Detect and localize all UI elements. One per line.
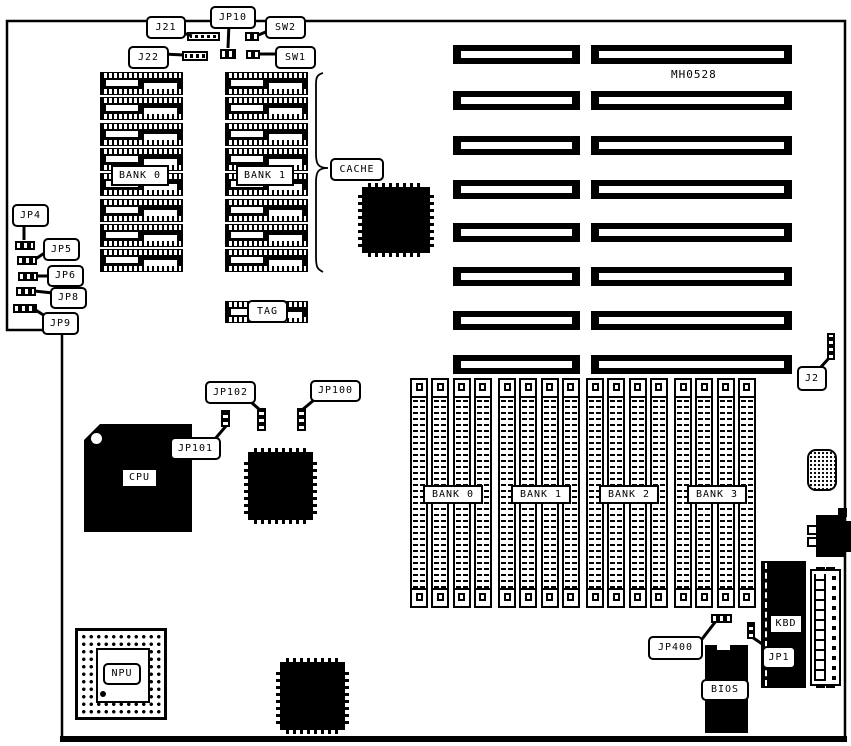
dip-body-window (106, 207, 138, 213)
memory-bank3-label: BANK 3 (687, 485, 747, 504)
simm-latch-hook (504, 383, 511, 391)
dip-body-window (144, 83, 177, 89)
board-bottom-edge (60, 736, 847, 742)
dip-body-window (144, 210, 177, 216)
dip-body-window (106, 257, 138, 263)
dip-body-window (106, 232, 138, 238)
simm-latch-hook (743, 383, 750, 391)
din-mount-tab-2 (807, 537, 818, 547)
din-connector-port (845, 521, 851, 552)
callout-jp4: JP4 (12, 204, 49, 227)
isa-slot-opening (599, 51, 784, 58)
isa-slot-segment (453, 180, 580, 199)
bios-label: BIOS (701, 679, 749, 701)
simm-latch-hook (525, 383, 532, 391)
simm-latch-top (500, 380, 514, 398)
isa-slot-segment (591, 311, 792, 330)
dip-body-window (231, 207, 263, 213)
simm-latch-hook (701, 383, 708, 391)
dip-pin-row-top (102, 225, 181, 230)
npu-label: NPU (103, 663, 141, 685)
cache-dip-chip (100, 97, 183, 120)
isa-slot-segment (591, 267, 792, 286)
io-controller-chip (280, 662, 345, 730)
jp5-jumper (17, 256, 37, 265)
simm-latch-hook (567, 593, 574, 601)
cache-dip-chip (100, 72, 183, 95)
din-connector-tab (838, 508, 847, 517)
simm-latch-hook (504, 593, 511, 601)
qfp-pins (313, 458, 317, 514)
cache-dip-chip (225, 199, 308, 222)
qfp-pins (276, 668, 280, 724)
qfp-pins (368, 253, 424, 257)
simm-latch-bottom (412, 588, 426, 606)
dip-pin-row-top (102, 149, 181, 154)
dip-pin-row-top (227, 73, 306, 78)
cache-dip-chip (225, 72, 308, 95)
simm-latch-bottom (476, 588, 490, 606)
callout-jp100: JP100 (310, 380, 361, 402)
j21-header (187, 32, 220, 41)
callout-jp5: JP5 (43, 238, 80, 261)
dip-pin-row-bottom (227, 266, 306, 271)
simm-latch-hook (701, 593, 708, 601)
simm-latch-hook (722, 593, 729, 601)
isa-slot-opening (461, 273, 572, 280)
simm-latch-hook (416, 593, 423, 601)
isa-slot-segment (591, 45, 792, 64)
dip-body-window (269, 159, 302, 165)
qfp-pins (286, 730, 339, 734)
dip-body-window (106, 131, 138, 137)
simm-latch-bottom (652, 588, 666, 606)
jp10-jumper (220, 49, 236, 59)
simm-latch-hook (680, 593, 687, 601)
jp1-jumper (747, 622, 755, 639)
memory-bank2-label: BANK 2 (599, 485, 659, 504)
isa-slot-segment (453, 267, 580, 286)
simm-latch-hook (416, 383, 423, 391)
simm-latch-hook (458, 593, 465, 601)
qfp-pins (430, 193, 434, 247)
dip-pin-row-top (102, 73, 181, 78)
callout-j2: J2 (797, 366, 827, 391)
isa-slot-segment (591, 223, 792, 242)
jp101-jumper (221, 410, 230, 427)
isa-slot-opening (599, 142, 784, 149)
callout-jp6: JP6 (47, 265, 84, 287)
qfp-pins (254, 520, 307, 524)
isa-slot-opening (599, 229, 784, 236)
qfp-pins (254, 448, 307, 452)
dip-body-window (144, 134, 177, 140)
isa-slot-opening (599, 317, 784, 324)
simm-latch-top (609, 380, 623, 398)
isa-slot-opening (461, 361, 572, 368)
simm-latch-bottom (676, 588, 690, 606)
simm-latch-top (543, 380, 557, 398)
isa-slot-segment (453, 355, 580, 374)
simm-latch-top (476, 380, 490, 398)
power-connector-contacts (832, 575, 836, 680)
dip-pin-row-bottom (227, 190, 306, 195)
simm-latch-top (631, 380, 645, 398)
simm-latch-hook (437, 593, 444, 601)
jp9-jumper (13, 304, 37, 313)
simm-latch-bottom (543, 588, 557, 606)
dip-body-window (231, 257, 263, 263)
dip-body-window (269, 210, 302, 216)
chipset-chip (248, 452, 313, 520)
dip-pin-row-bottom (102, 216, 181, 221)
isa-slot-segment (591, 136, 792, 155)
jp400-jumper (711, 614, 732, 623)
dip-pin-row-bottom (102, 140, 181, 145)
isa-slot-opening (461, 186, 572, 193)
dip-pin-row-bottom (102, 241, 181, 246)
simm-latch-top (433, 380, 447, 398)
j22-header (182, 51, 208, 61)
callout-jp1: JP1 (762, 646, 796, 669)
simm-latch-hook (634, 593, 641, 601)
isa-slot-opening (461, 142, 572, 149)
callout-jp9: JP9 (42, 312, 79, 335)
simm-latch-bottom (719, 588, 733, 606)
simm-latch-hook (592, 383, 599, 391)
dip-body-window (231, 131, 263, 137)
dip-pin-row-bottom (102, 190, 181, 195)
dip-pin-row-bottom (102, 114, 181, 119)
isa-slot-opening (599, 273, 784, 280)
memory-bank1-label: BANK 1 (511, 485, 571, 504)
dip-pin-row-top (227, 250, 306, 255)
dip-pin-row-bottom (227, 114, 306, 119)
callout-sw2: SW2 (265, 16, 306, 39)
simm-latch-bottom (697, 588, 711, 606)
simm-latch-bottom (564, 588, 578, 606)
isa-slot-segment (453, 311, 580, 330)
isa-slot-opening (461, 317, 572, 324)
simm-latch-hook (567, 383, 574, 391)
dip-pin-row-bottom (227, 216, 306, 221)
simm-latch-hook (479, 593, 486, 601)
simm-latch-hook (546, 593, 553, 601)
isa-slot-segment (453, 91, 580, 110)
jp4-jumper (15, 241, 35, 250)
qfp-pins (358, 193, 362, 247)
dip-body-window (231, 80, 263, 86)
simm-latch-bottom (500, 588, 514, 606)
simm-latch-bottom (631, 588, 645, 606)
isa-slot-segment (453, 45, 580, 64)
dip-body-window (106, 156, 138, 162)
dip-body-window (231, 232, 263, 238)
dip-pin-row-bottom (227, 89, 306, 94)
callout-jp400: JP400 (648, 636, 703, 660)
cache-dip-chip (225, 224, 308, 247)
callout-j22: J22 (128, 46, 169, 69)
power-connector (810, 569, 841, 686)
dip-body-window (269, 260, 302, 266)
dip-pin-row-top (227, 200, 306, 205)
cache-dip-chip (225, 123, 308, 146)
dip-body-window (269, 83, 302, 89)
jp8-jumper (16, 287, 36, 296)
din-mount-tab-1 (807, 525, 818, 535)
j2-jumper (827, 333, 835, 360)
simm-latch-top (588, 380, 602, 398)
cache-dip-chip (100, 249, 183, 272)
isa-slot-opening (461, 229, 572, 236)
part-number: MH0528 (671, 68, 717, 81)
qfp-pins (345, 668, 349, 724)
simm-latch-hook (525, 593, 532, 601)
dip-body-window (106, 105, 138, 111)
simm-latch-hook (437, 383, 444, 391)
sw2-switch (245, 32, 259, 41)
tag-label: TAG (247, 300, 288, 323)
dip-pin-row-bottom (102, 89, 181, 94)
dip-pin-row-top (227, 225, 306, 230)
simm-latch-top (719, 380, 733, 398)
simm-latch-top (697, 380, 711, 398)
simm-latch-hook (592, 593, 599, 601)
simm-latch-top (740, 380, 754, 398)
isa-slot-segment (453, 136, 580, 155)
simm-latch-top (455, 380, 469, 398)
isa-slot-segment (591, 91, 792, 110)
isa-slot-segment (591, 180, 792, 199)
din-keyboard-connector (816, 515, 846, 557)
dip-pin-row-bottom (227, 241, 306, 246)
dip-pin-row-top (227, 124, 306, 129)
dip-pin-row-bottom (102, 266, 181, 271)
cache-dip-chip (225, 249, 308, 272)
cache-bank0-label: BANK 0 (111, 165, 169, 186)
cache-brace (316, 73, 328, 272)
callout-cache: CACHE (330, 158, 384, 181)
cache-bank1-label: BANK 1 (236, 165, 294, 186)
dip-body-window (106, 80, 138, 86)
simm-latch-hook (680, 383, 687, 391)
isa-slot-opening (461, 97, 572, 104)
dip-pin-row-top (102, 200, 181, 205)
simm-latch-hook (613, 383, 620, 391)
callout-j21: J21 (146, 16, 186, 39)
dip-body-window (144, 108, 177, 114)
dip-body-window (144, 260, 177, 266)
sw1-switch (246, 50, 260, 59)
isa-slot-segment (591, 355, 792, 374)
simm-latch-hook (634, 383, 641, 391)
isa-slot-opening (599, 361, 784, 368)
cache-dip-chip (225, 97, 308, 120)
cache-controller-chip (362, 187, 430, 253)
jp102-jumper (257, 408, 266, 431)
isa-slot-opening (599, 97, 784, 104)
dip-body-window (144, 235, 177, 241)
isa-slot-opening (461, 51, 572, 58)
power-connector-pins (814, 574, 826, 681)
simm-latch-hook (655, 383, 662, 391)
simm-latch-hook (655, 593, 662, 601)
simm-latch-bottom (588, 588, 602, 606)
callout-jp10: JP10 (210, 6, 256, 29)
cpu-pin1-dot (91, 433, 102, 444)
simm-latch-top (652, 380, 666, 398)
memory-bank0-label: BANK 0 (423, 485, 483, 504)
jp6-jumper (18, 272, 38, 281)
kbd-label: KBD (769, 614, 803, 634)
npu-pin1-dot (100, 691, 106, 697)
dip-pin-row-top (102, 124, 181, 129)
dip-body-window (231, 156, 263, 162)
isa-slot-opening (599, 186, 784, 193)
dip-body-window (269, 134, 302, 140)
callout-jp8: JP8 (50, 287, 87, 309)
dip-pin-row-top (102, 250, 181, 255)
motherboard-diagram: MH0528 J21 JP10 SW2 J22 SW1 JP4 JP5 JP6 … (0, 0, 851, 746)
jp100-jumper (297, 408, 306, 431)
cache-dip-chip (100, 199, 183, 222)
simm-latch-bottom (521, 588, 535, 606)
simm-latch-top (521, 380, 535, 398)
cpu-label: CPU (121, 468, 158, 488)
simm-latch-bottom (609, 588, 623, 606)
bios-chip-notch (717, 645, 730, 650)
crystal-component (807, 449, 837, 491)
dip-pin-row-top (102, 98, 181, 103)
simm-latch-hook (458, 383, 465, 391)
qfp-pins (244, 458, 248, 514)
simm-latch-hook (479, 383, 486, 391)
cache-dip-chip (100, 224, 183, 247)
dip-body-window (231, 105, 263, 111)
isa-slot-segment (453, 223, 580, 242)
simm-latch-top (564, 380, 578, 398)
simm-latch-top (676, 380, 690, 398)
simm-latch-bottom (740, 588, 754, 606)
qfp-pins (286, 658, 339, 662)
simm-latch-bottom (455, 588, 469, 606)
simm-latch-hook (613, 593, 620, 601)
callout-sw1: SW1 (275, 46, 316, 69)
cache-dip-chip (100, 123, 183, 146)
qfp-pins (368, 183, 424, 187)
dip-body-window (269, 108, 302, 114)
simm-latch-hook (546, 383, 553, 391)
dip-pin-row-top (227, 98, 306, 103)
simm-latch-bottom (433, 588, 447, 606)
callout-jp101: JP101 (170, 437, 221, 460)
simm-latch-hook (743, 593, 750, 601)
callout-jp102: JP102 (205, 381, 256, 404)
dip-body-window (269, 235, 302, 241)
simm-latch-hook (722, 383, 729, 391)
simm-latch-top (412, 380, 426, 398)
dip-pin-row-bottom (227, 140, 306, 145)
dip-pin-row-top (227, 149, 306, 154)
dip-body-window (144, 159, 177, 165)
